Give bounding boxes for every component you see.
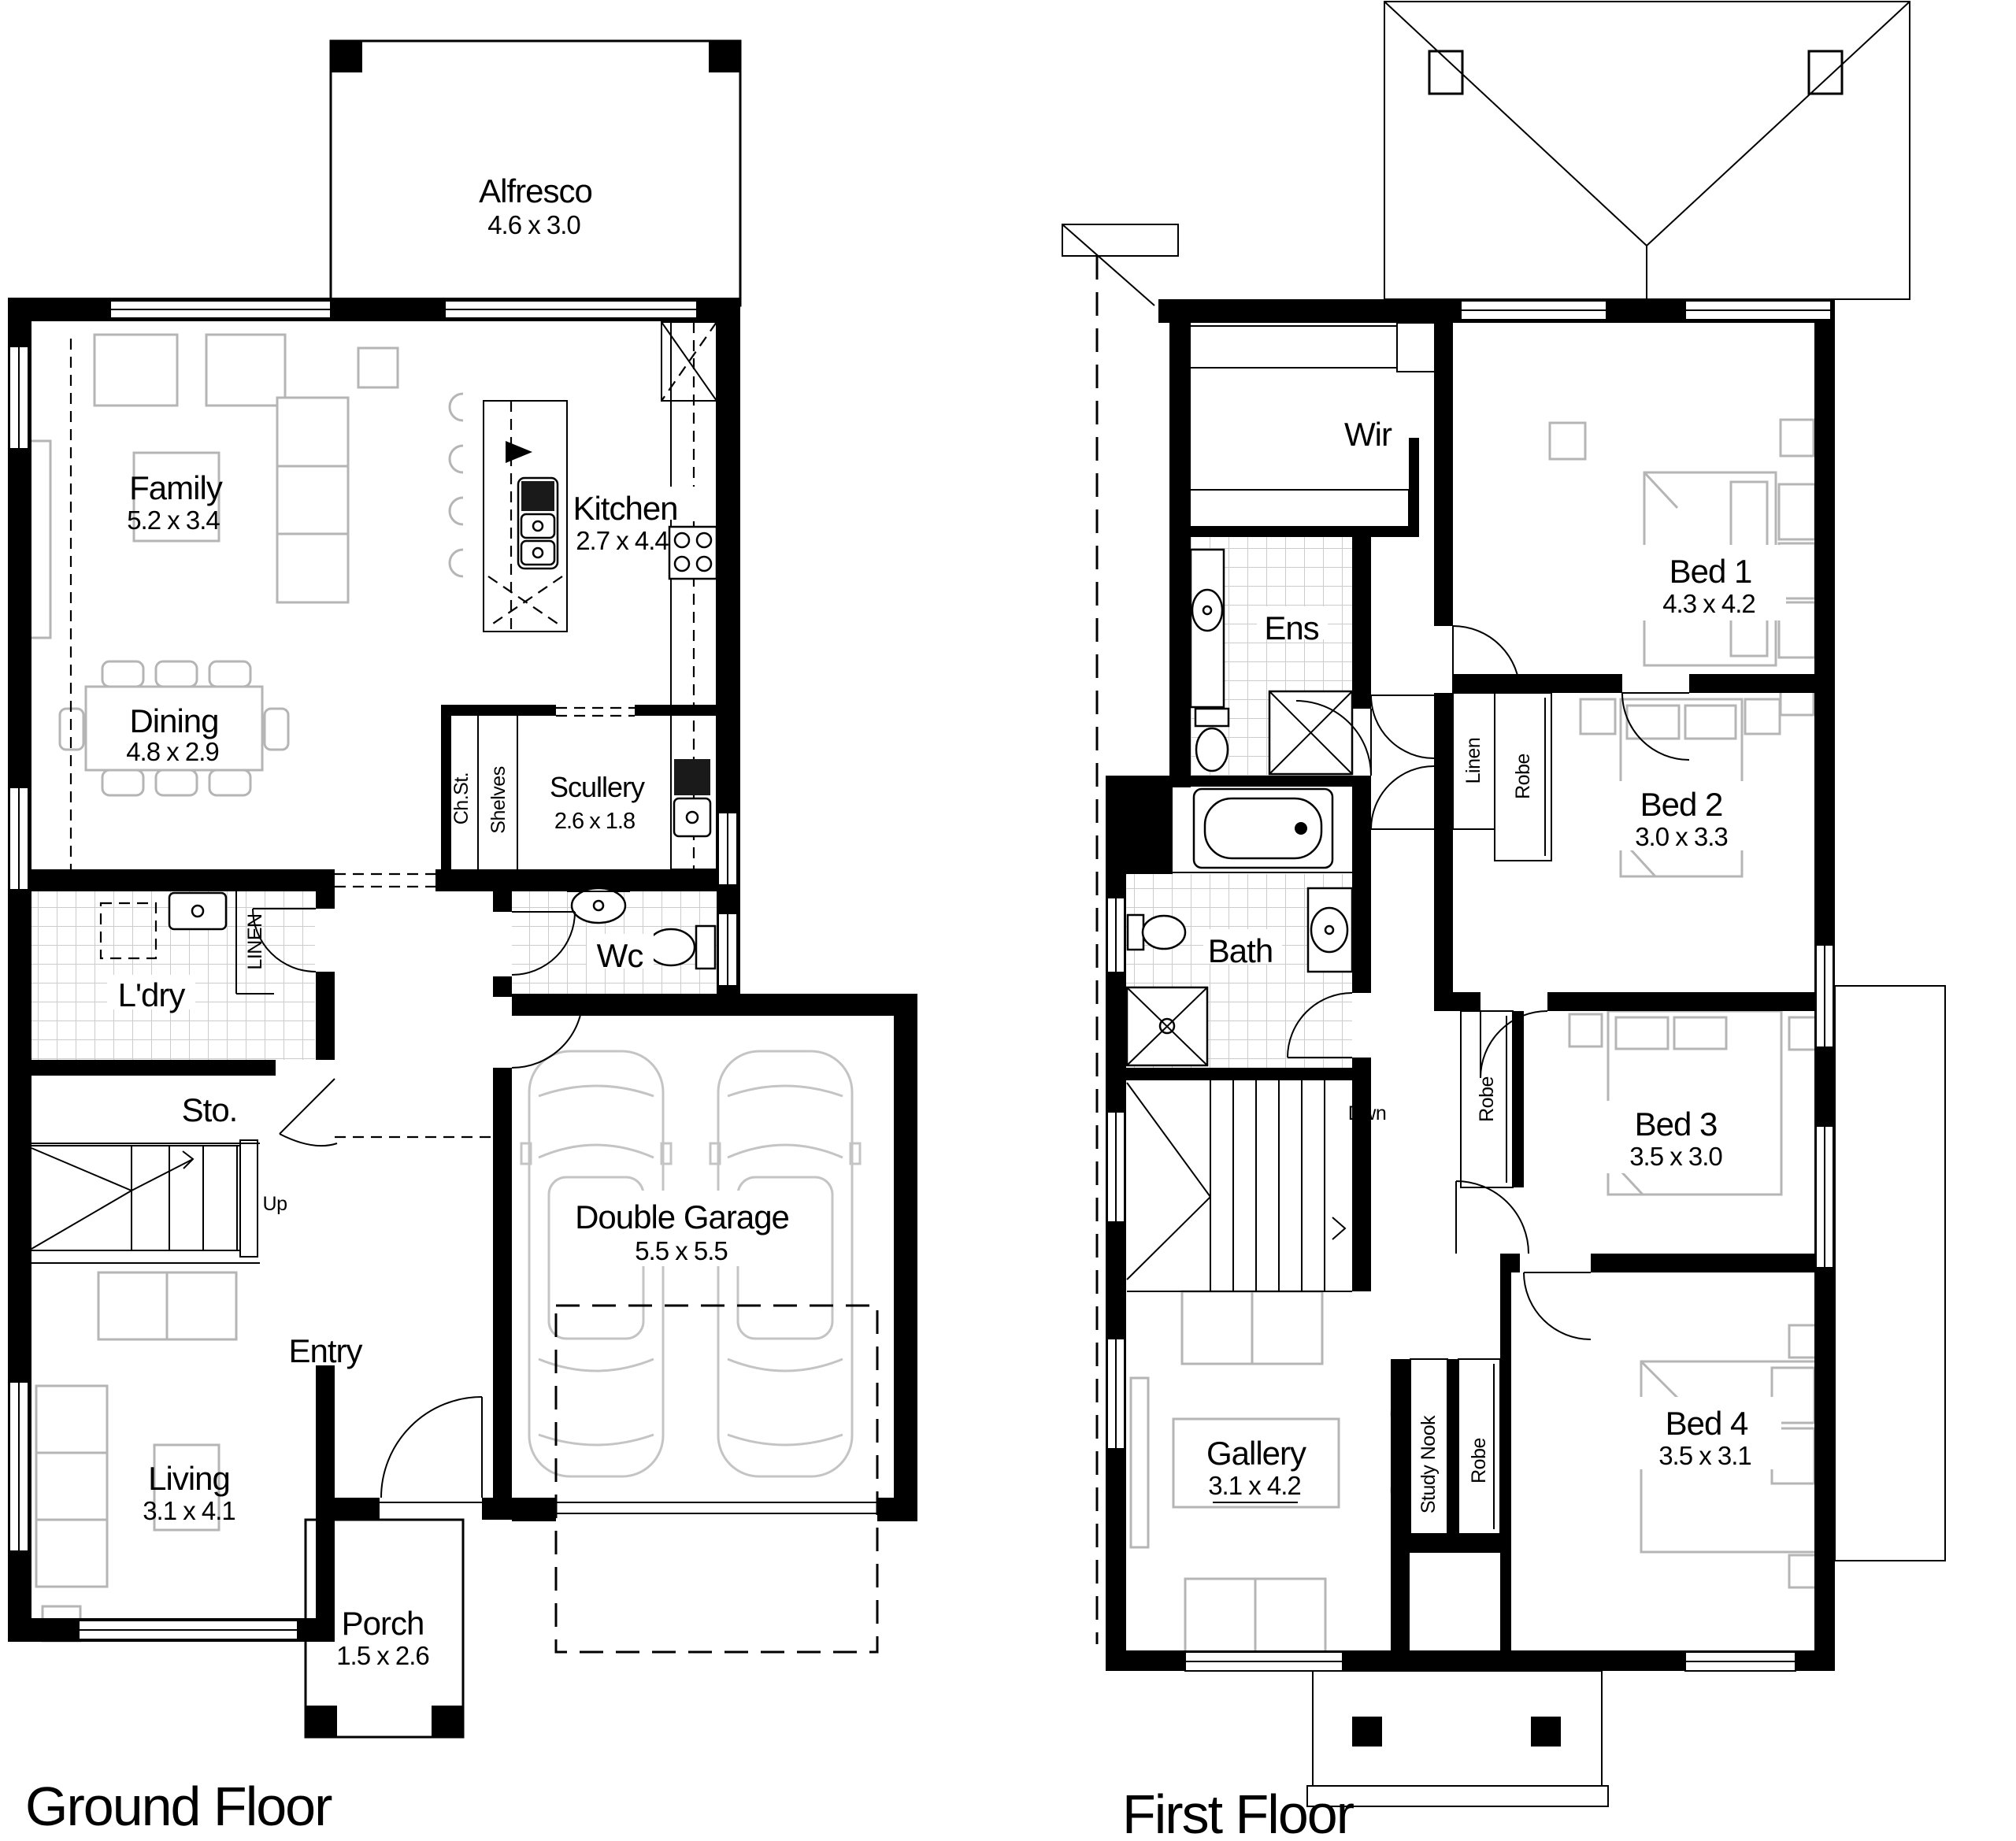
direction-triangle-icon (506, 441, 532, 463)
room-label-ldry: L'dry (118, 976, 186, 1013)
stool (450, 550, 463, 576)
dining-chair (102, 770, 143, 795)
dining-chair (156, 661, 197, 687)
roof-below-outline (1835, 986, 1945, 1561)
room-label-alfresco: Alfresco (479, 172, 592, 209)
vanity-icon (1191, 550, 1224, 707)
toilet-icon (647, 926, 715, 969)
dining-chair (102, 661, 143, 687)
garage-door-apron (556, 1306, 877, 1652)
room-label-entry: Entry (288, 1332, 362, 1369)
room-label-bed4: Bed 4 (1666, 1405, 1748, 1442)
label-up: Up (263, 1193, 287, 1215)
balcony-post (1352, 1717, 1382, 1747)
sink-icon (518, 478, 558, 569)
couch (277, 398, 348, 602)
room-label-bed3: Bed 3 (1635, 1106, 1718, 1143)
dining-chair (209, 661, 250, 687)
toilet-icon (1195, 709, 1228, 771)
room-label-kitchen: Kitchen (573, 490, 677, 527)
dining-chair (265, 709, 288, 750)
floor-plan-canvas: Alfresco 4.6 x 3.0 Family 5.2 x 3.4 Kitc… (0, 0, 2016, 1841)
label-robe-bed4: Robe (1468, 1438, 1490, 1484)
room-label-bed2: Bed 2 (1640, 786, 1723, 823)
porch-post (306, 1706, 337, 1737)
room-dims-bed4: 3.5 x 3.1 (1658, 1441, 1751, 1470)
garage-cars (521, 1051, 877, 1652)
label-linen: LINEN (244, 913, 266, 969)
sofa-seat (94, 335, 177, 406)
wir-shelf (1179, 326, 1397, 368)
roof-vent (1809, 51, 1842, 94)
room-label-dining: Dining (129, 702, 218, 739)
label-robe-bed2: Robe (1512, 754, 1534, 799)
room-label-wc: Wc (597, 937, 643, 974)
ground-floor-title: Ground Floor (25, 1776, 332, 1837)
room-dims-bed3: 3.5 x 3.0 (1629, 1142, 1722, 1171)
sofa-seat (206, 335, 285, 406)
room-dims-family: 5.2 x 3.4 (127, 506, 220, 535)
room-dims-dining: 4.8 x 2.9 (126, 737, 219, 766)
room-dims-garage: 5.5 x 5.5 (635, 1236, 728, 1265)
dining-chair (209, 770, 250, 795)
room-label-sto: Sto. (182, 1091, 238, 1128)
bathtub-icon (1194, 789, 1332, 868)
room-dims-scullery: 2.6 x 1.8 (554, 809, 635, 834)
stool (450, 394, 463, 420)
shower-icon (1269, 691, 1352, 774)
room-label-living: Living (148, 1460, 230, 1497)
tv-unit (1131, 1378, 1148, 1547)
label-dwn: Dwn (1348, 1102, 1387, 1124)
stairs-down (1127, 1080, 1352, 1291)
room-label-bath: Bath (1208, 932, 1273, 969)
first-floor-title: First Floor (1122, 1784, 1354, 1841)
room-label-scullery: Scullery (550, 771, 645, 803)
room-dims-kitchen: 2.7 x 4.4 (576, 526, 669, 555)
first-floor-plan: Wir Bed 1 4.3 x 4.2 Ens Bed 2 3.0 x 3.3 … (1062, 2, 1945, 1841)
room-label-family: Family (129, 469, 223, 506)
room-label-porch: Porch (342, 1605, 424, 1642)
label-shelves: Shelves (487, 766, 510, 833)
sink-icon (674, 759, 710, 836)
label-chst: Ch.St. (450, 772, 472, 824)
shower-icon (1127, 987, 1207, 1065)
room-dims-gallery: 3.1 x 4.2 (1208, 1471, 1301, 1500)
alfresco-post (331, 41, 362, 72)
room-label-gallery: Gallery (1206, 1435, 1306, 1472)
stove-icon (669, 527, 717, 579)
couch (36, 1386, 107, 1587)
dining-chair (156, 770, 197, 795)
stool (450, 498, 463, 524)
room-dims-alfresco: 4.6 x 3.0 (487, 210, 580, 239)
roof-vent (1429, 51, 1462, 94)
balcony-post (1531, 1717, 1561, 1747)
room-label-bed1: Bed 1 (1669, 553, 1752, 590)
stool (450, 446, 463, 472)
room-label-wir: Wir (1344, 416, 1392, 453)
side-table (358, 348, 398, 387)
room-dims-bed1: 4.3 x 4.2 (1662, 589, 1755, 618)
alfresco-post (709, 41, 740, 72)
label-robe-bed3: Robe (1476, 1076, 1498, 1122)
label-study-nook: Study Nook (1417, 1415, 1440, 1513)
room-dims-living: 3.1 x 4.1 (143, 1496, 235, 1525)
room-label-ens: Ens (1264, 609, 1318, 646)
room-dims-bed2: 3.0 x 3.3 (1635, 822, 1728, 851)
wir-shelf (1179, 490, 1409, 527)
stairs-up (31, 1140, 258, 1257)
porch-post (432, 1706, 463, 1737)
label-linen-first: Linen (1462, 738, 1484, 784)
ground-floor-plan: Alfresco 4.6 x 3.0 Family 5.2 x 3.4 Kitc… (8, 41, 917, 1837)
toilet-icon (1128, 915, 1185, 950)
laundry-tub-icon (169, 893, 226, 929)
room-dims-porch: 1.5 x 2.6 (336, 1641, 429, 1670)
room-label-garage: Double Garage (575, 1198, 789, 1235)
tv-unit (30, 441, 50, 638)
vanity-icon (1308, 888, 1352, 972)
